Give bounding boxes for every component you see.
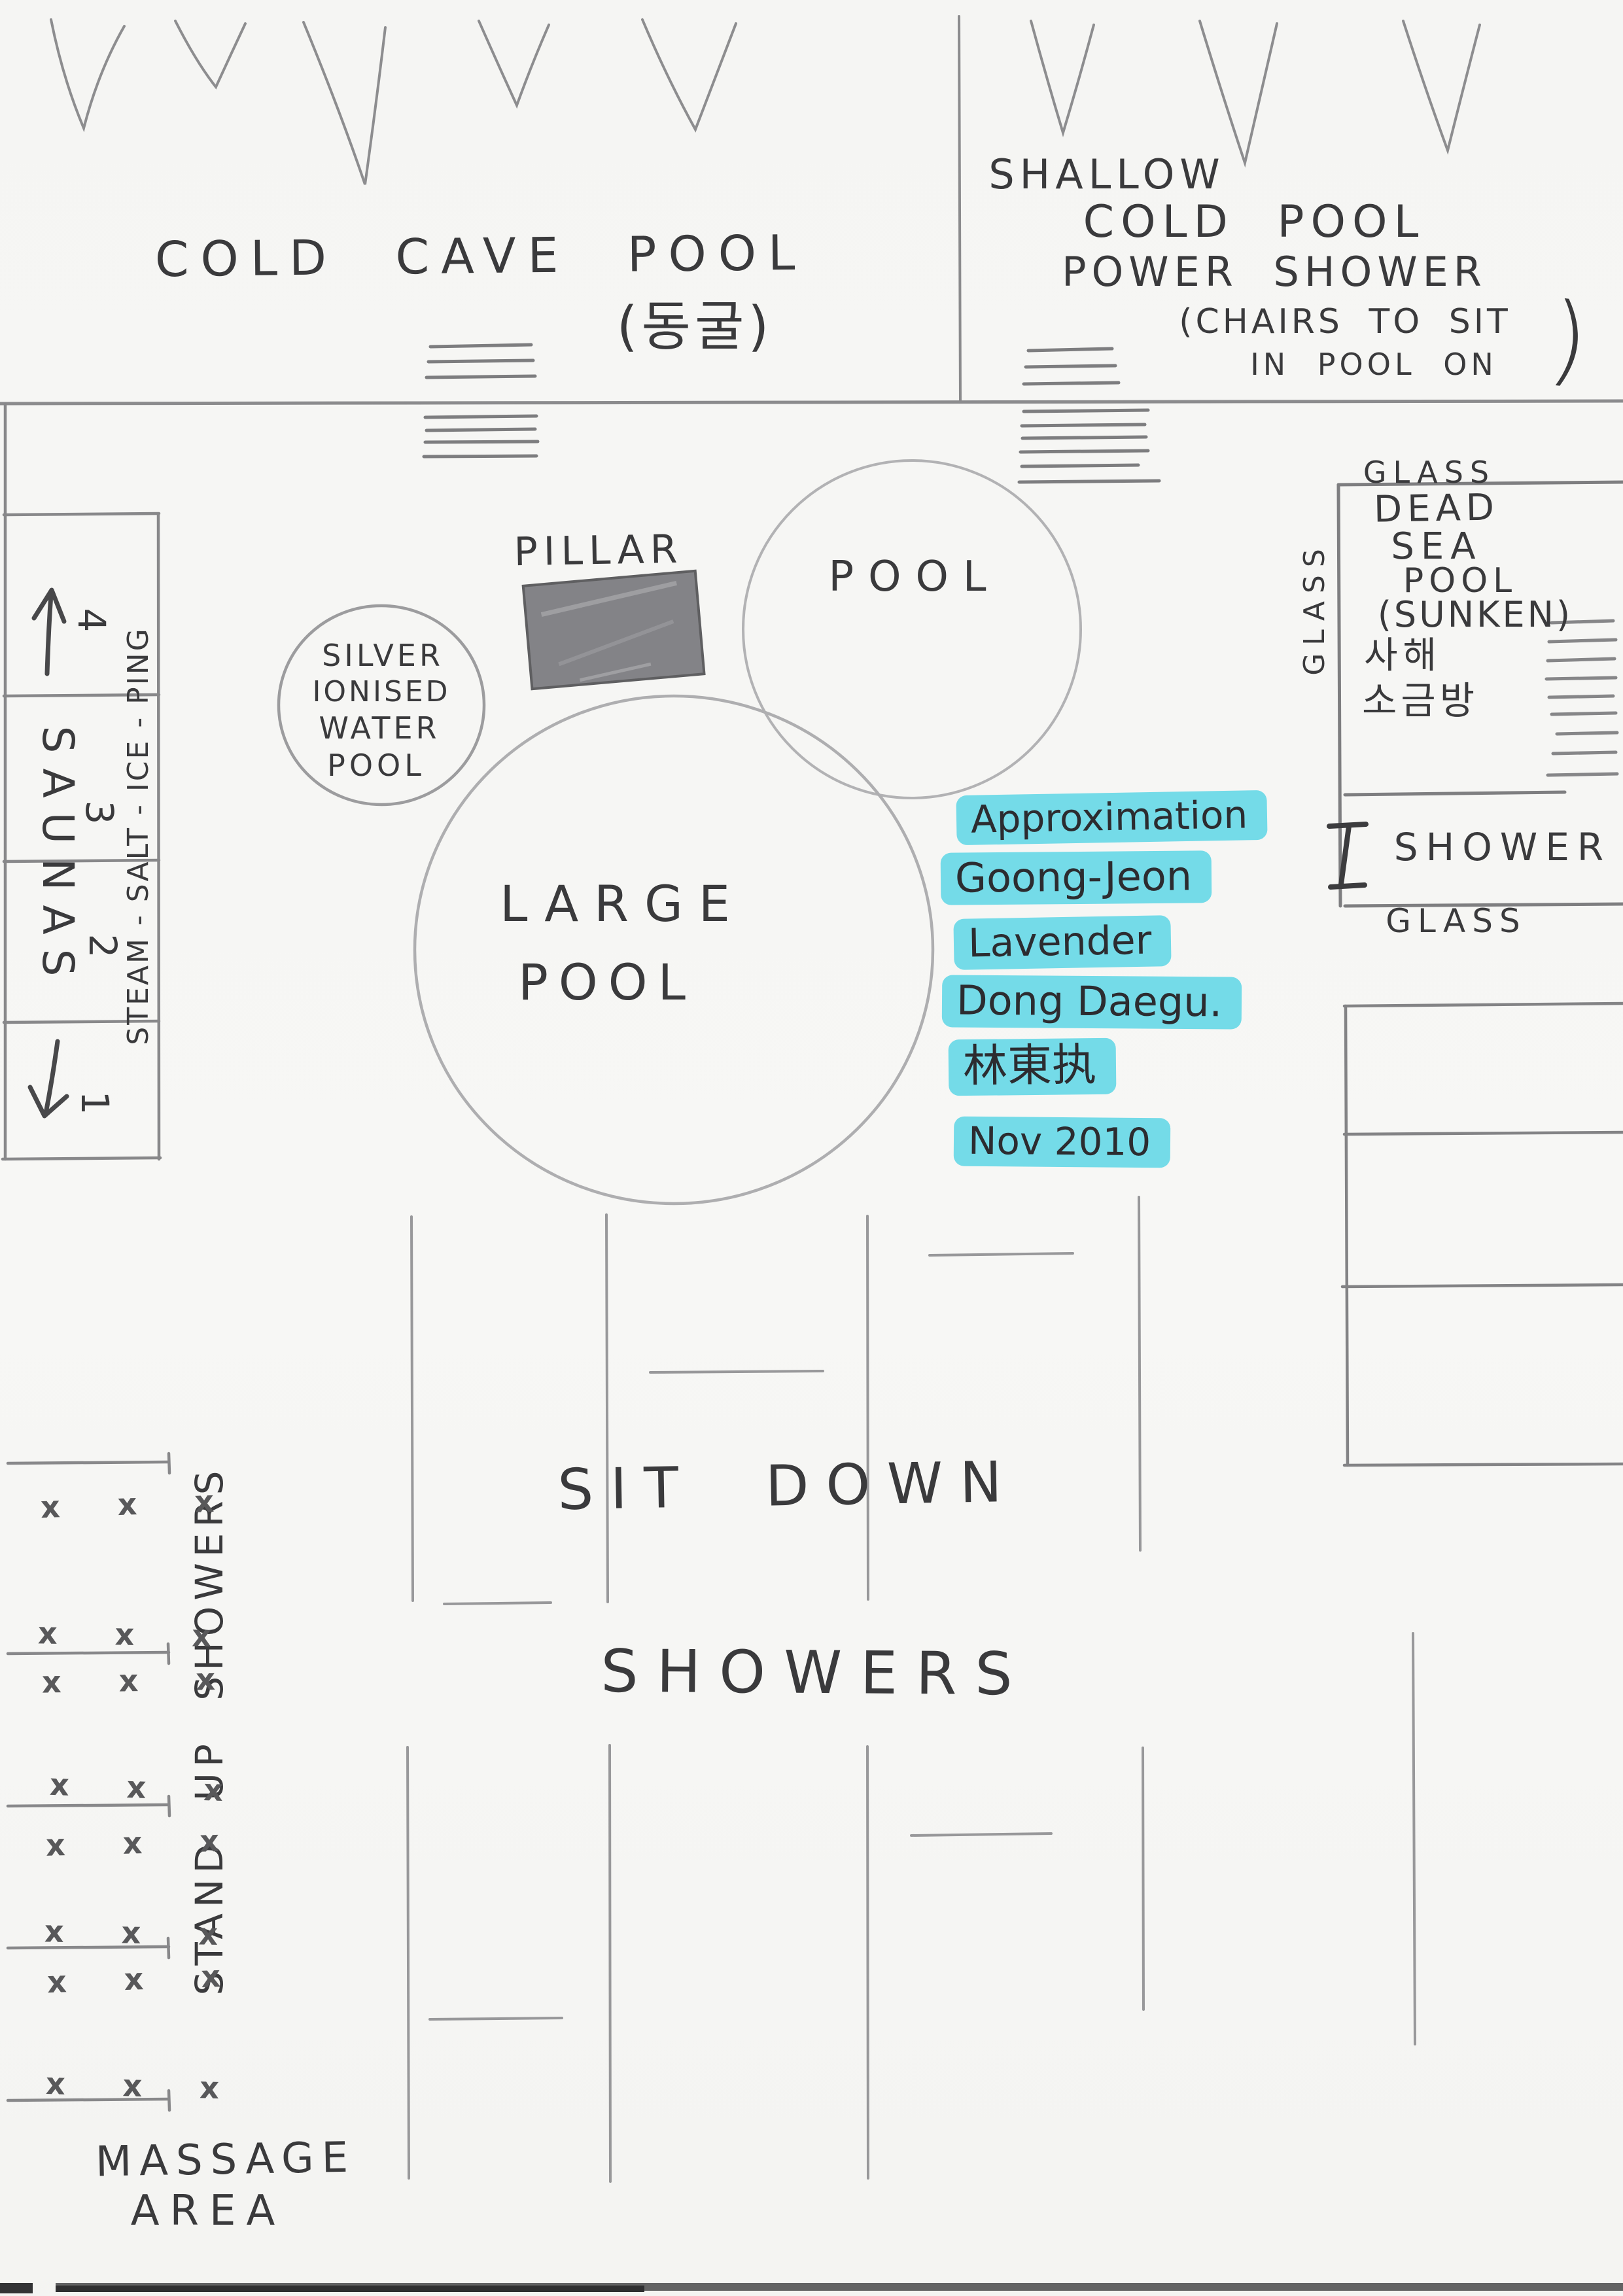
shower-partitions-upper <box>411 1197 1140 1604</box>
silver-pool-line2: IONISED <box>312 678 450 706</box>
x-marks-row: x x x <box>49 1767 247 1809</box>
shower-partitions-lower <box>408 1633 1415 2182</box>
large-pool-outline <box>415 696 933 1204</box>
massage-area-line2: AREA <box>131 2190 285 2232</box>
shallow-pool-line4: (CHAIRS TO SIT <box>1179 305 1511 339</box>
shallow-pool-line1: SHALLOW <box>988 154 1225 195</box>
shower-room-label: SHOWER <box>1394 828 1611 866</box>
dead-sea-line3: POOL <box>1403 564 1517 598</box>
sauna-number-1: 1 <box>76 1091 114 1115</box>
note-line-5: 林東执 <box>949 1038 1117 1096</box>
x-marks-row: x x x <box>38 1615 236 1654</box>
large-pool-line2: POOL <box>518 958 696 1007</box>
dead-sea-korean1: 사해 <box>1364 638 1442 674</box>
x-marks-row: x x x <box>42 1661 239 1699</box>
x-marks-row: x x x <box>40 1483 238 1525</box>
hatch-marks-right <box>1019 349 1159 482</box>
hatch-marks-left <box>424 345 538 457</box>
sit-down-line2: SHOWERS <box>601 1643 1031 1705</box>
dead-sea-line1: DEAD <box>1374 489 1500 528</box>
sauna-number-4: 4 <box>73 608 111 633</box>
x-marks-row: x x x <box>46 1958 245 2000</box>
dead-sea-glass-top: GLASS <box>1363 457 1495 487</box>
shallow-pool-line2: COLD POOL <box>1083 200 1425 245</box>
stalactite-icons <box>51 20 1480 184</box>
massage-area-line1: MASSAGE <box>95 2137 356 2183</box>
note-line-2: Goong-Jeon <box>941 850 1212 905</box>
note-highlight-4: Dong Daegu. <box>942 975 1242 1029</box>
note-highlight-2: Goong-Jeon <box>941 850 1212 905</box>
pillar-shape <box>523 571 705 689</box>
dead-sea-hatch-marks <box>1546 621 1617 775</box>
silver-pool-line3: WATER <box>319 713 440 743</box>
pool-label: POOL <box>829 556 1001 598</box>
x-marks-row: x x x <box>44 1913 242 1952</box>
down-arrow-icon <box>30 1041 67 1116</box>
sauna-number-3: 3 <box>80 801 118 825</box>
linework-layer <box>0 0 1623 2296</box>
note-highlight-3: Lavender <box>953 915 1172 970</box>
dead-sea-line4: (SUNKEN) <box>1378 597 1573 633</box>
large-pool-line1: LARGE <box>500 879 746 929</box>
note-line-1: Approximation <box>956 790 1267 845</box>
right-table-lines <box>1342 1003 1623 1465</box>
note-line-4: Dong Daegu. <box>942 975 1242 1029</box>
dead-sea-glass-side: GLASS <box>1300 541 1329 676</box>
cold-cave-pool-title: COLD CAVE POOL <box>154 229 807 284</box>
note-highlight-5: 林東执 <box>949 1038 1117 1096</box>
shower-glass-label: GLASS <box>1386 905 1526 937</box>
dead-sea-korean2: 소금방 <box>1362 682 1478 720</box>
silver-pool-line1: SILVER <box>322 640 444 670</box>
sit-down-line1: SIT DOWN <box>557 1454 1020 1518</box>
x-marks-row: x x x <box>45 1822 243 1863</box>
note-highlight-1: Approximation <box>956 790 1267 845</box>
note-line-3: Lavender <box>953 915 1172 970</box>
shallow-pool-line3: POWER SHOWER <box>1062 252 1487 292</box>
pillar-label: PILLAR <box>514 530 684 572</box>
floor-plan-sketch: COLD CAVE POOL (동굴) SHALLOW COLD POOL PO… <box>0 0 1623 2296</box>
note-line-6: Nov 2010 <box>954 1117 1171 1168</box>
sauna-types-label: STEAM - SALT - ICE - PING <box>124 627 153 1045</box>
x-marks-row: x x x <box>45 2066 243 2106</box>
silver-pool-line4: POOL <box>327 750 425 780</box>
scan-edge <box>0 2283 1623 2293</box>
saunas-word: SAUNAS <box>36 726 79 991</box>
sauna-number-2: 2 <box>84 934 122 958</box>
note-highlight-6: Nov 2010 <box>954 1117 1171 1168</box>
cold-cave-pool-korean: (동굴) <box>617 300 773 354</box>
up-arrow-icon <box>34 590 64 674</box>
shallow-pool-line5: IN POOL ON <box>1250 349 1497 379</box>
round-pool-outline <box>743 461 1081 798</box>
shower-door-icon <box>1329 824 1366 887</box>
dead-sea-line2: SEA <box>1391 529 1482 565</box>
